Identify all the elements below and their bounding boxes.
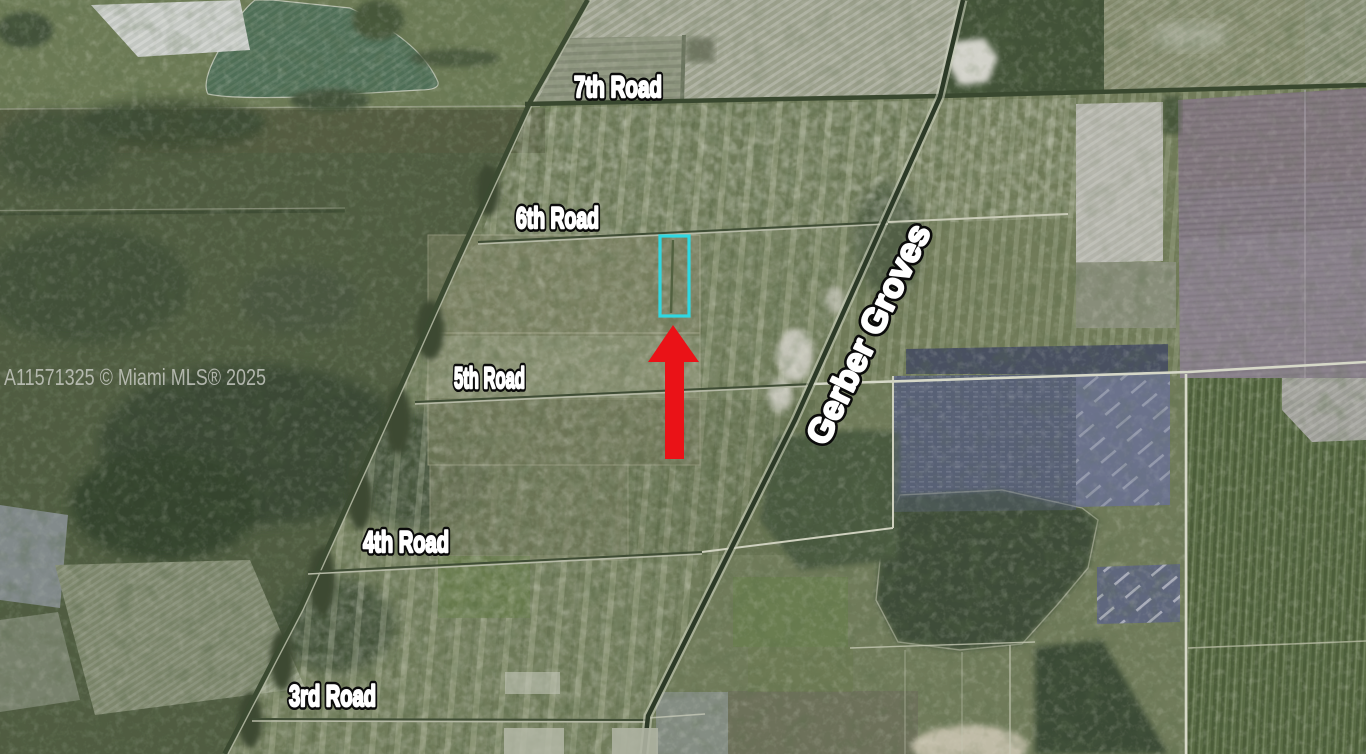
svg-text:4th Road: 4th Road [363,526,449,559]
svg-text:7th Road: 7th Road [574,71,662,104]
svg-text:6th Road: 6th Road [516,202,599,235]
svg-text:A11571325 © Miami MLS® 2025: A11571325 © Miami MLS® 2025 [4,364,266,390]
svg-text:3rd Road: 3rd Road [289,680,376,713]
svg-text:5th Road: 5th Road [454,362,525,395]
